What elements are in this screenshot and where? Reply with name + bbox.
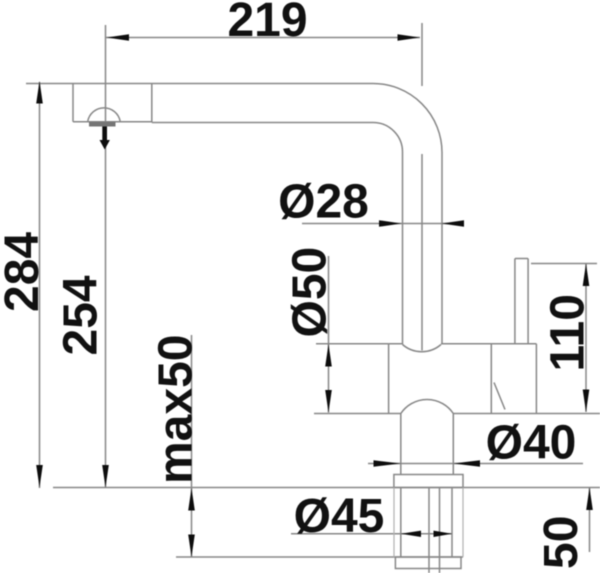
svg-text:284: 284 [0, 232, 49, 312]
svg-text:Ø40: Ø40 [486, 417, 577, 470]
svg-text:Ø45: Ø45 [294, 490, 385, 543]
svg-text:max50: max50 [150, 335, 203, 484]
svg-text:Ø28: Ø28 [278, 176, 369, 229]
svg-text:50: 50 [535, 516, 588, 569]
svg-text:Ø50: Ø50 [284, 247, 337, 338]
svg-text:254: 254 [55, 275, 108, 355]
svg-text:110: 110 [542, 294, 595, 371]
svg-text:219: 219 [227, 0, 307, 47]
